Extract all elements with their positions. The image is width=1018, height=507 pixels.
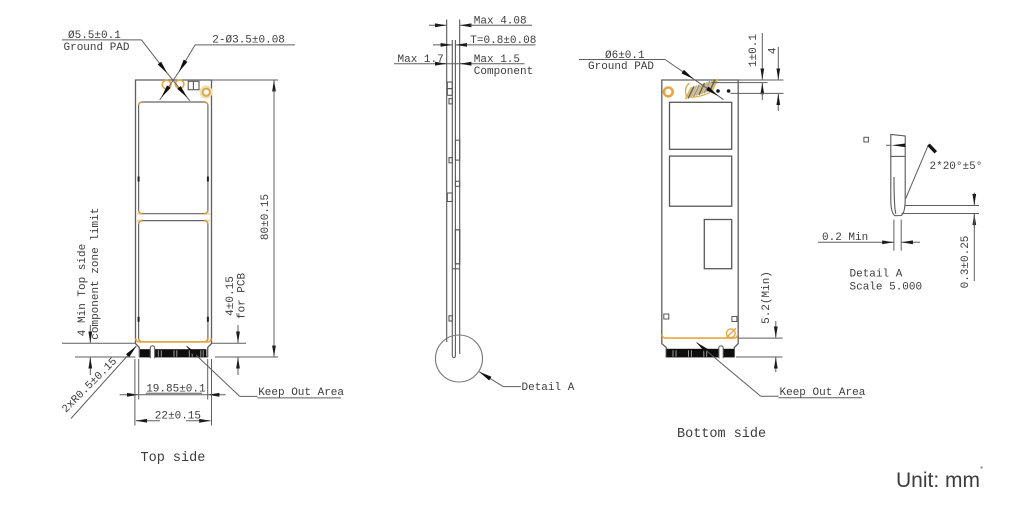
svg-text:1±0.1: 1±0.1 xyxy=(748,34,760,67)
svg-text:for PCB: for PCB xyxy=(237,273,249,320)
svg-text:T=0.8±0.08: T=0.8±0.08 xyxy=(470,35,536,47)
svg-text:Max 4.08: Max 4.08 xyxy=(474,16,527,28)
svg-text:Component: Component xyxy=(474,66,533,78)
svg-text:Max 1.7: Max 1.7 xyxy=(398,54,444,66)
svg-text:5.2(Min): 5.2(Min) xyxy=(761,271,773,324)
svg-text:Keep Out Area: Keep Out Area xyxy=(780,387,866,399)
svg-text:19.85±0.1: 19.85±0.1 xyxy=(146,384,206,396)
svg-text:80±0.15: 80±0.15 xyxy=(260,194,272,240)
svg-text:Ground PAD: Ground PAD xyxy=(588,61,654,73)
svg-text:Detail A: Detail A xyxy=(522,382,575,394)
svg-text:Top side: Top side xyxy=(141,451,206,466)
svg-text:Bottom side: Bottom side xyxy=(677,427,766,442)
svg-text:4: 4 xyxy=(768,47,780,54)
svg-text:Scale 5.000: Scale 5.000 xyxy=(850,282,923,294)
svg-text:4±0.15: 4±0.15 xyxy=(225,276,237,316)
svg-text:0.2 Min: 0.2 Min xyxy=(822,232,868,244)
svg-text:4 Min Top side: 4 Min Top side xyxy=(77,244,89,336)
svg-text:Max 1.5: Max 1.5 xyxy=(474,54,520,66)
svg-text:2*20°±5°: 2*20°±5° xyxy=(930,161,983,173)
svg-text:Ground PAD: Ground PAD xyxy=(64,42,130,54)
svg-text:component zone limit: component zone limit xyxy=(90,208,102,340)
svg-text:Unit: mm: Unit: mm xyxy=(896,469,980,492)
svg-text:Keep Out Area: Keep Out Area xyxy=(258,387,344,399)
svg-text:Detail A: Detail A xyxy=(850,269,903,281)
svg-text:22±0.15: 22±0.15 xyxy=(155,410,201,422)
svg-text:0.3±0.25: 0.3±0.25 xyxy=(960,236,972,289)
